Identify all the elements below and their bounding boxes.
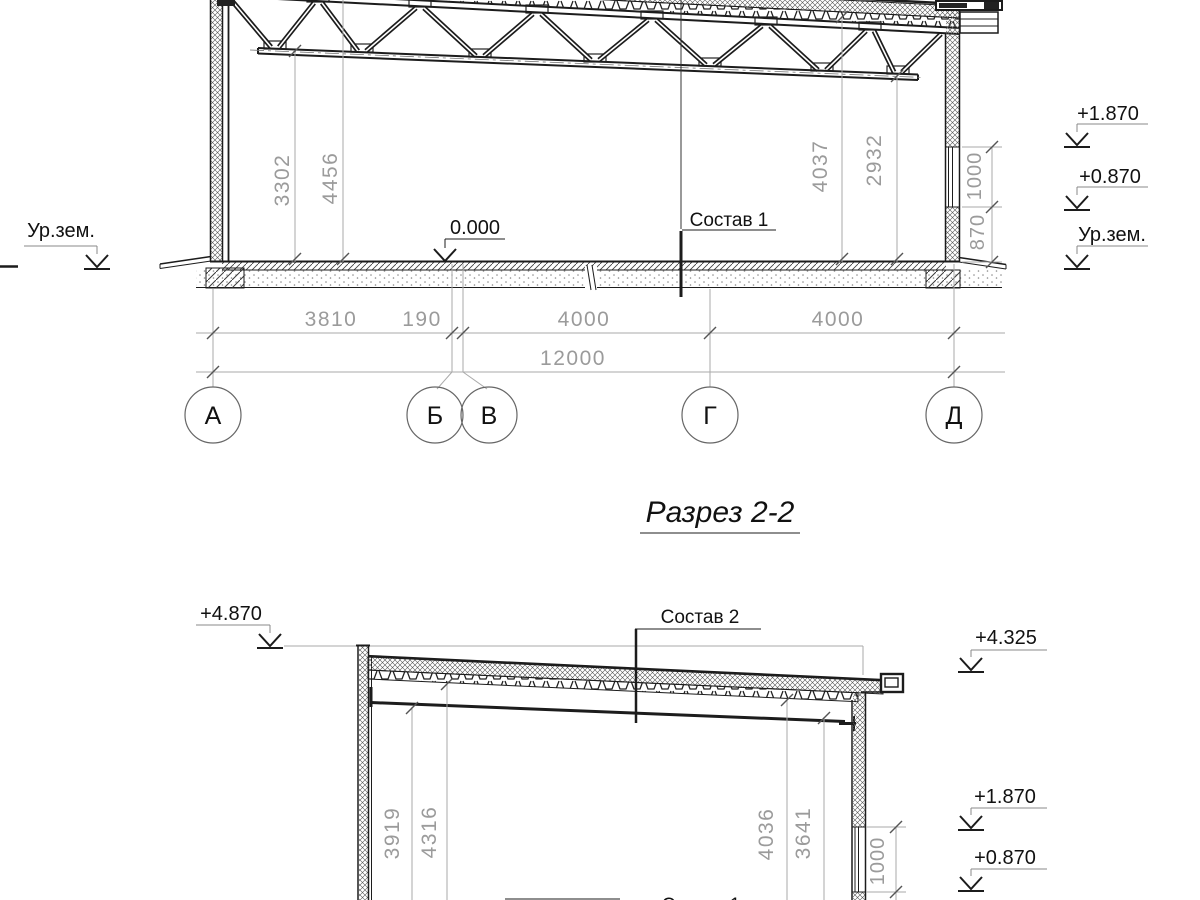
dim-4316: 4316: [418, 806, 441, 859]
left-wall-2: [356, 645, 372, 900]
label-sostav-1: Состав 1: [690, 210, 769, 231]
dim-wall-1000-b: 1000: [867, 837, 889, 886]
dim-4456: 4456: [319, 152, 342, 205]
dim-3919: 3919: [381, 807, 404, 860]
dim-2932: 2932: [863, 134, 886, 187]
level-4870-text: +4.870: [200, 603, 262, 625]
label-sostav-2: Состав 2: [661, 607, 740, 628]
level-1870b-text: +1.870: [974, 786, 1036, 808]
ground-left-text: Ур.зем.: [27, 220, 95, 242]
level-1870-text: +1.870: [1077, 103, 1139, 125]
floor-composition-leader-2: Состав 1: [505, 895, 740, 900]
level-mark-ground-right: Ур.зем.: [1064, 224, 1148, 269]
axis-g: Г: [703, 402, 717, 430]
dim-4037: 4037: [809, 140, 832, 193]
dim-3810: 3810: [305, 308, 358, 331]
right-wall-2: [852, 692, 866, 900]
dim-3641: 3641: [792, 807, 815, 860]
level-0870b-text: +0.870: [974, 847, 1036, 869]
top-section: 3302 4456 4037 2932 1000 870 Со: [0, 0, 1148, 443]
roof-composition-leader: Состав 2: [635, 607, 761, 723]
dim-wall-1000: 1000: [964, 152, 986, 201]
axis-bubbles: А Б В Г Д: [185, 387, 982, 443]
ground-right-text: Ур.зем.: [1078, 224, 1146, 246]
foundation-right: [926, 270, 960, 288]
axis-a: А: [205, 402, 222, 430]
apron-left: [160, 257, 211, 269]
dim-4000-b: 4000: [812, 308, 865, 331]
level-mark-4325: +4.325: [958, 627, 1047, 672]
left-parapet-cap: [217, 0, 235, 6]
dim-4036: 4036: [755, 808, 778, 861]
dim-3302: 3302: [271, 154, 294, 207]
axis-d: Д: [946, 402, 963, 430]
drawing-sheet: 3302 4456 4037 2932 1000 870 Со: [0, 0, 1200, 900]
level-0870-text: +0.870: [1079, 166, 1141, 188]
dim-4000-a: 4000: [558, 308, 611, 331]
label-sostav-1b: Состав 1: [662, 895, 741, 900]
level-mark-0870-b: +0.870: [958, 847, 1047, 891]
foundation-left: [206, 268, 244, 288]
wall-opening-dimension-2: 1000: [866, 821, 906, 900]
level-mark-1870-b: +1.870: [958, 786, 1047, 830]
section-title: Разрез 2-2: [640, 496, 800, 533]
apron-right: [959, 258, 1006, 270]
floor-slab: [0, 257, 1006, 291]
wall-opening-dimension: 1000 870: [962, 141, 1002, 268]
left-wall: [211, 0, 236, 262]
dim-12000: 12000: [540, 347, 606, 370]
vertical-dimensions: 3302 4456 4037 2932: [271, 0, 903, 265]
section-drawing-svg: 3302 4456 4037 2932 1000 870 Со: [0, 0, 1200, 900]
level-mark-4870: +4.870: [196, 603, 283, 648]
axis-b: Б: [427, 402, 443, 430]
level-zero-text: 0.000: [450, 217, 500, 239]
roof-edge-block: [960, 12, 998, 33]
floor-composition-leader: Состав 1: [681, 0, 776, 297]
axis-v: В: [481, 402, 498, 430]
bottom-section: Состав 2 +4.870 +4.325 +1.870: [196, 603, 1047, 900]
level-mark-1870: +1.870: [1064, 103, 1148, 147]
dim-190: 190: [402, 308, 442, 331]
dim-wall-870: 870: [967, 214, 989, 250]
level-mark-ground-left: Ур.зем.: [24, 220, 110, 269]
level-4325-text: +4.325: [975, 627, 1037, 649]
section-title-text: Разрез 2-2: [646, 496, 795, 529]
level-mark-0870: +0.870: [1064, 166, 1148, 210]
level-mark-zero: 0.000: [434, 217, 505, 261]
